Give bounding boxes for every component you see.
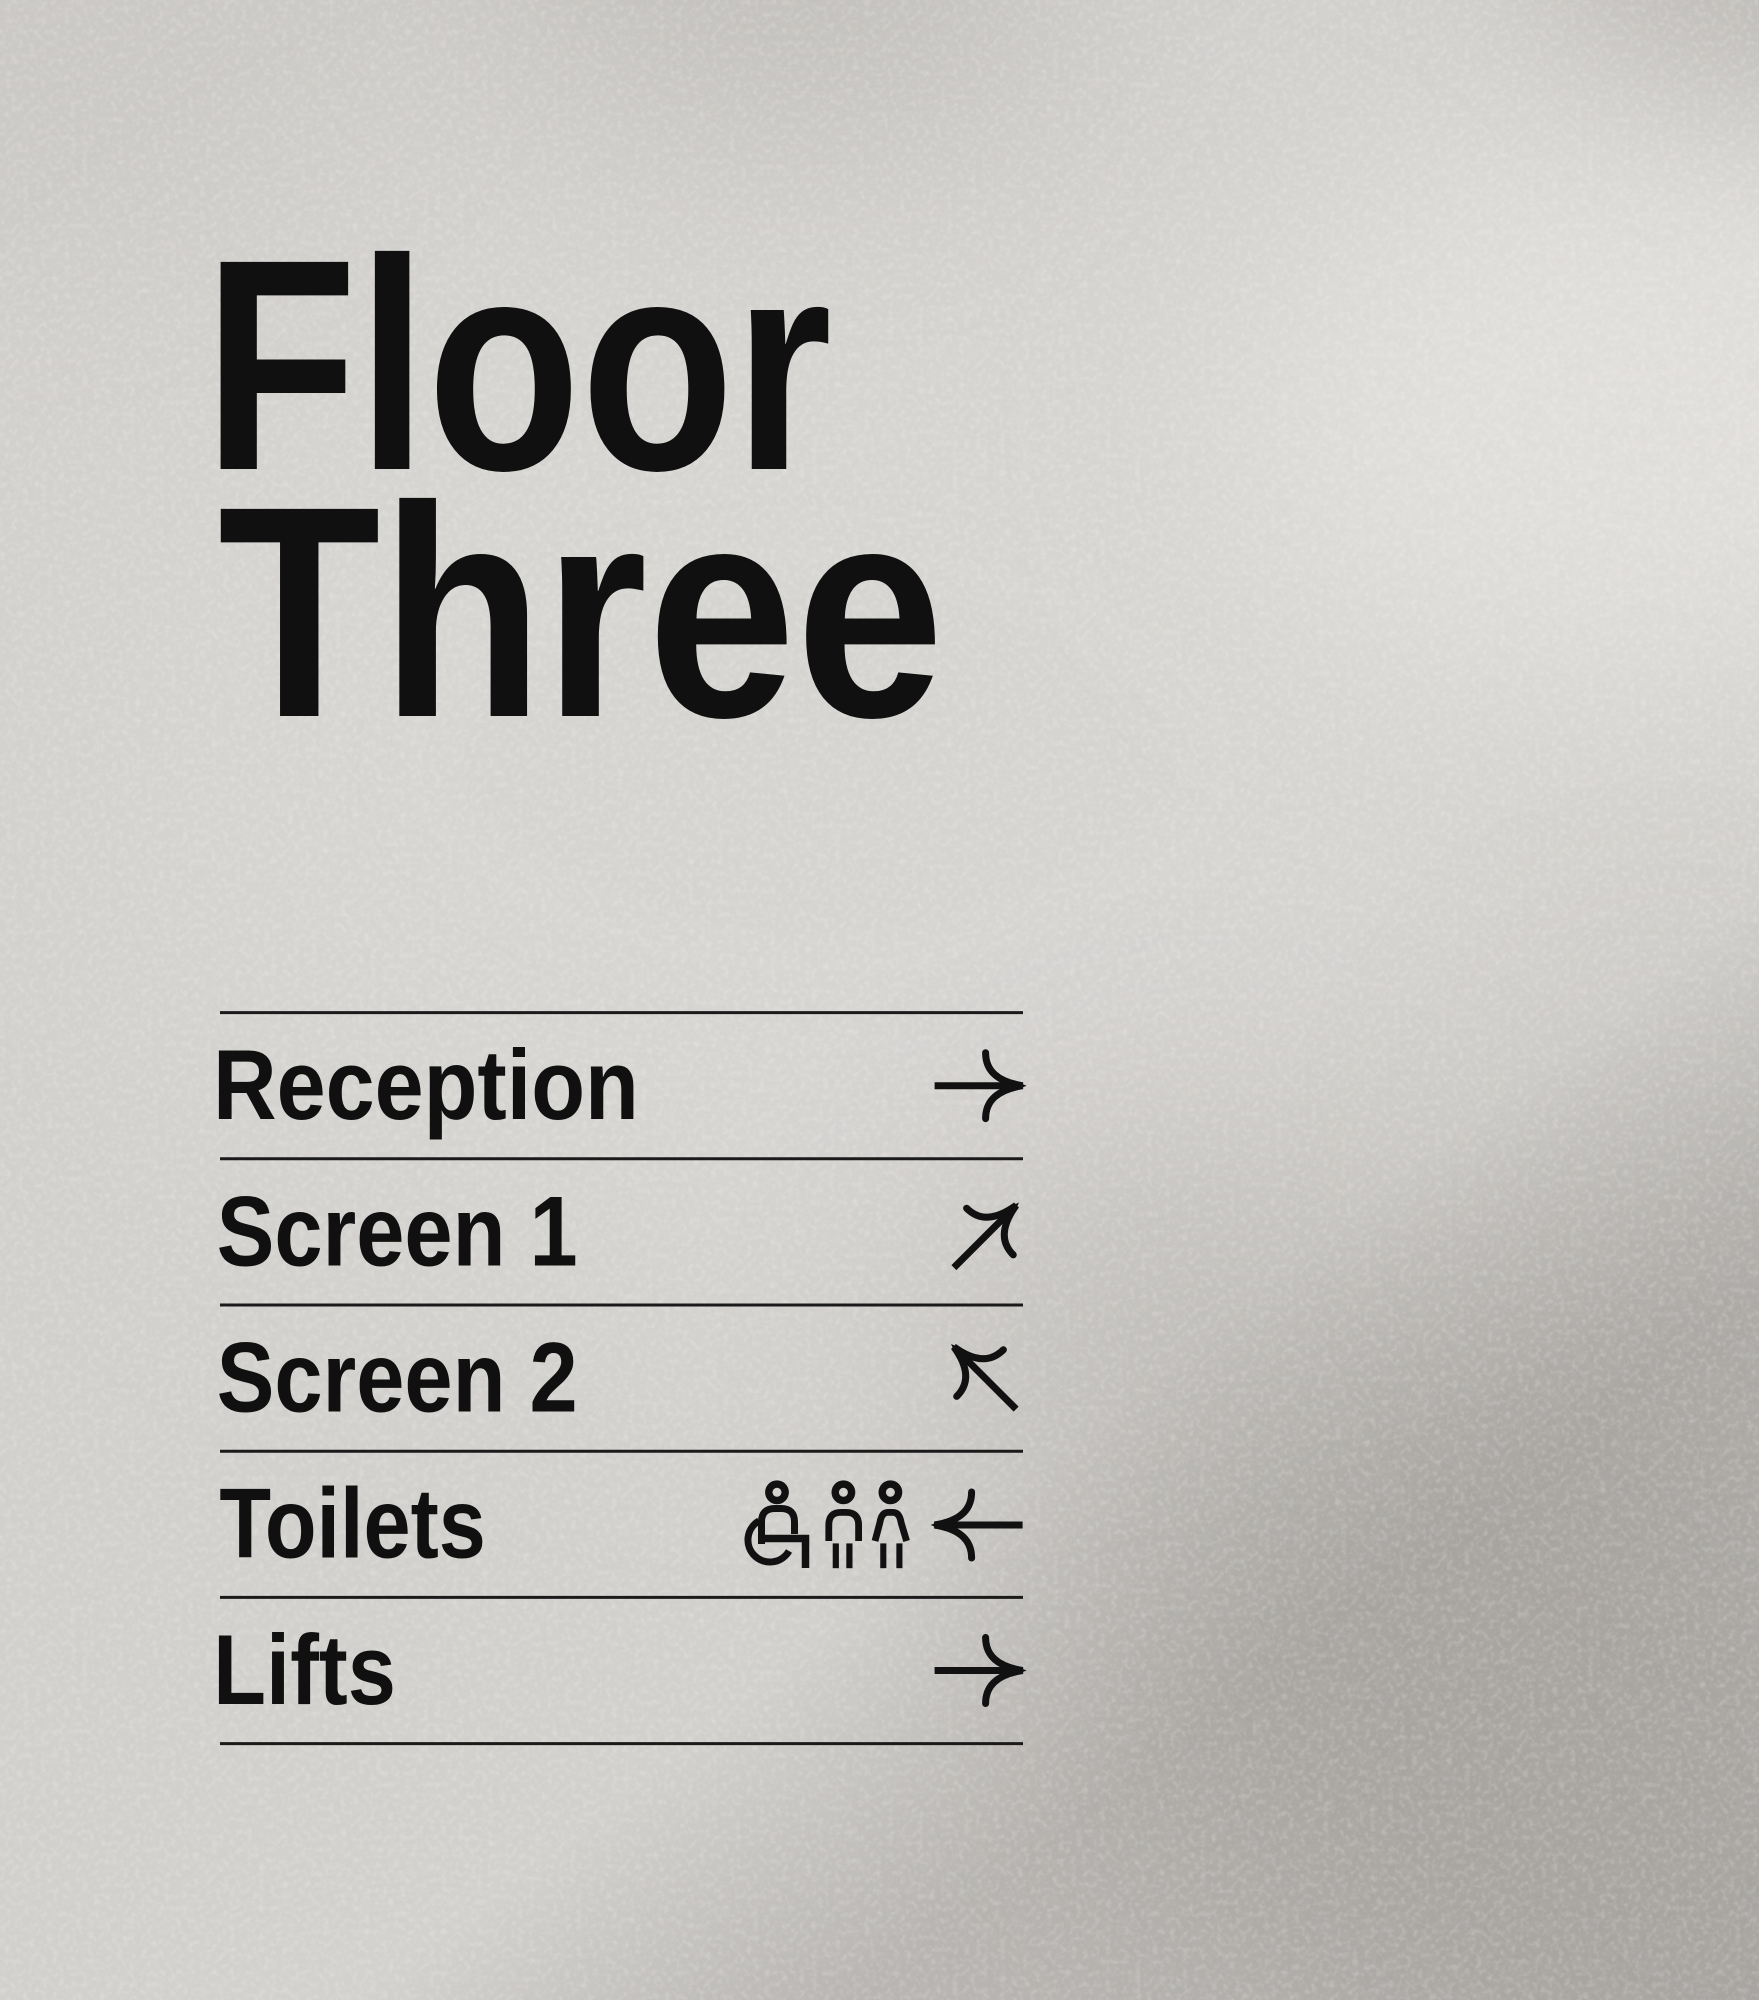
svg-text:Three: Three — [218, 445, 944, 781]
svg-text:Screen 1: Screen 1 — [217, 1176, 578, 1287]
svg-text:Lifts: Lifts — [213, 1614, 396, 1725]
svg-text:Screen 2: Screen 2 — [217, 1322, 578, 1433]
svg-text:Reception: Reception — [213, 1029, 639, 1140]
svg-text:Toilets: Toilets — [219, 1468, 485, 1579]
